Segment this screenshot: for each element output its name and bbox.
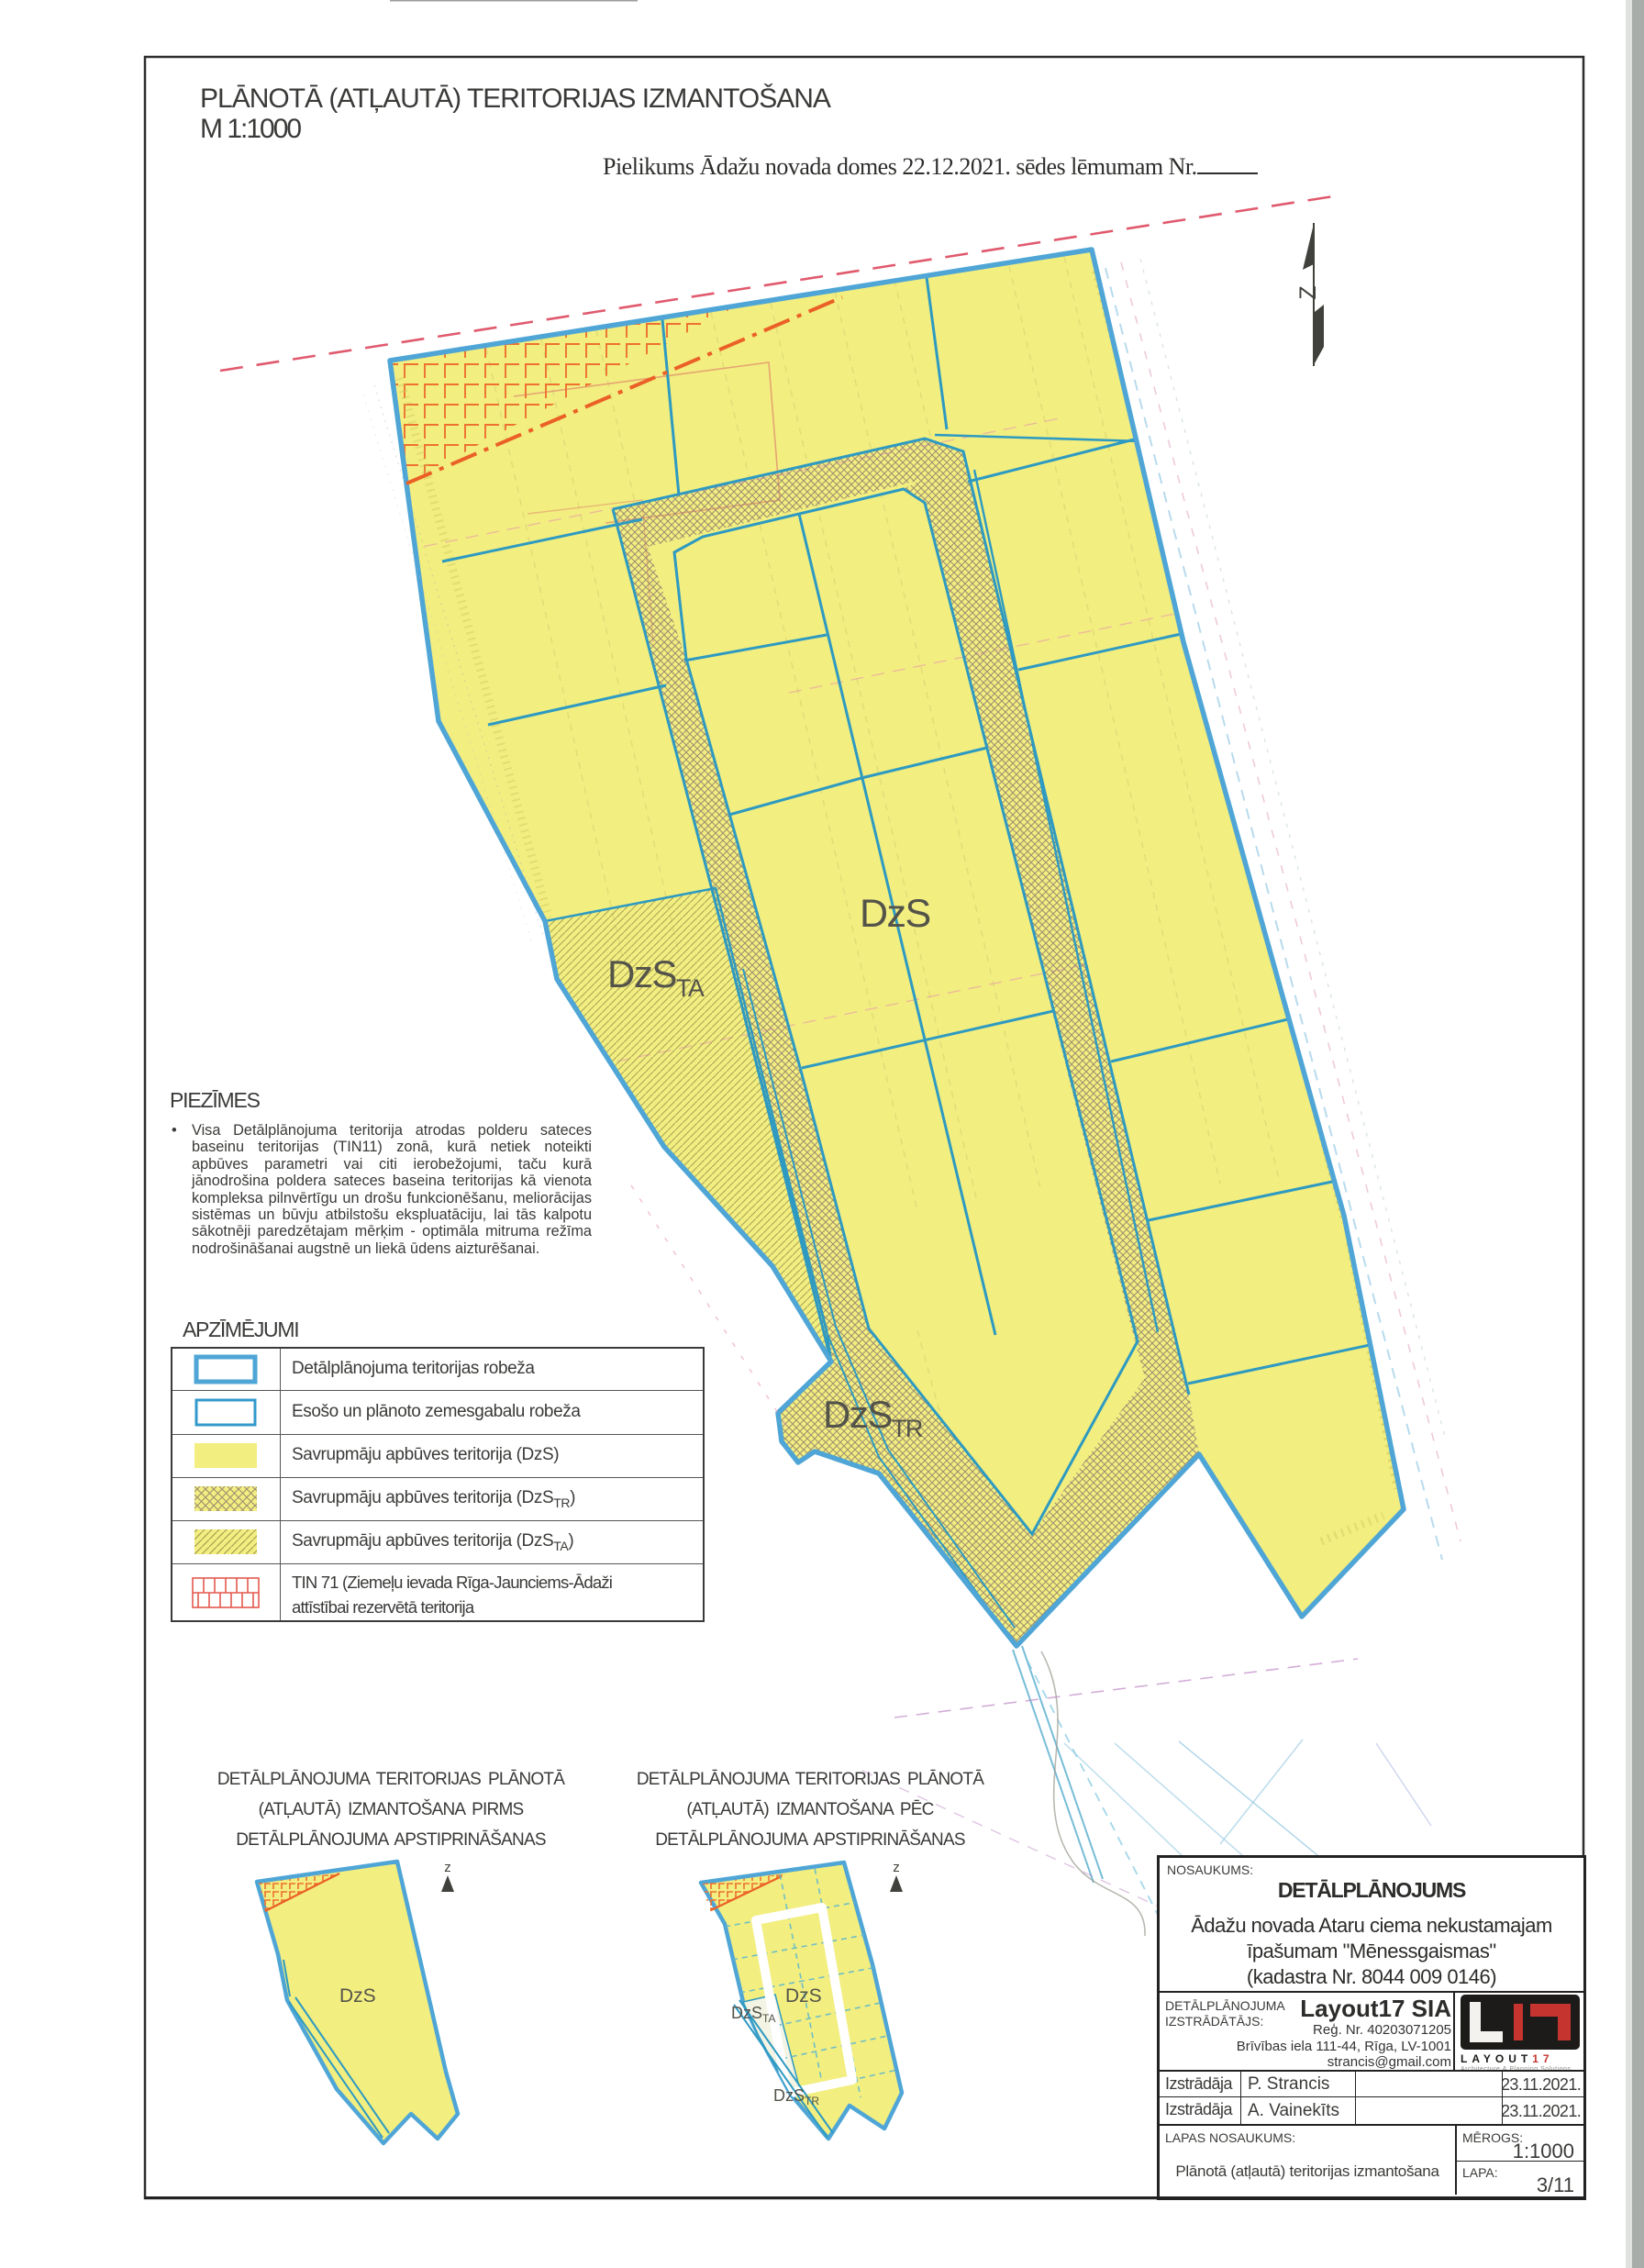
svg-text:DzS: DzS <box>339 1985 376 2007</box>
svg-text:Z: Z <box>1295 285 1321 299</box>
svg-text:DzS: DzS <box>860 892 930 936</box>
svg-text:z: z <box>444 1860 451 1875</box>
svg-text:DzS: DzS <box>785 1985 822 2007</box>
svg-text:LAYOUT17: LAYOUT17 <box>1461 2052 1554 2065</box>
svg-text:z: z <box>893 1860 900 1875</box>
